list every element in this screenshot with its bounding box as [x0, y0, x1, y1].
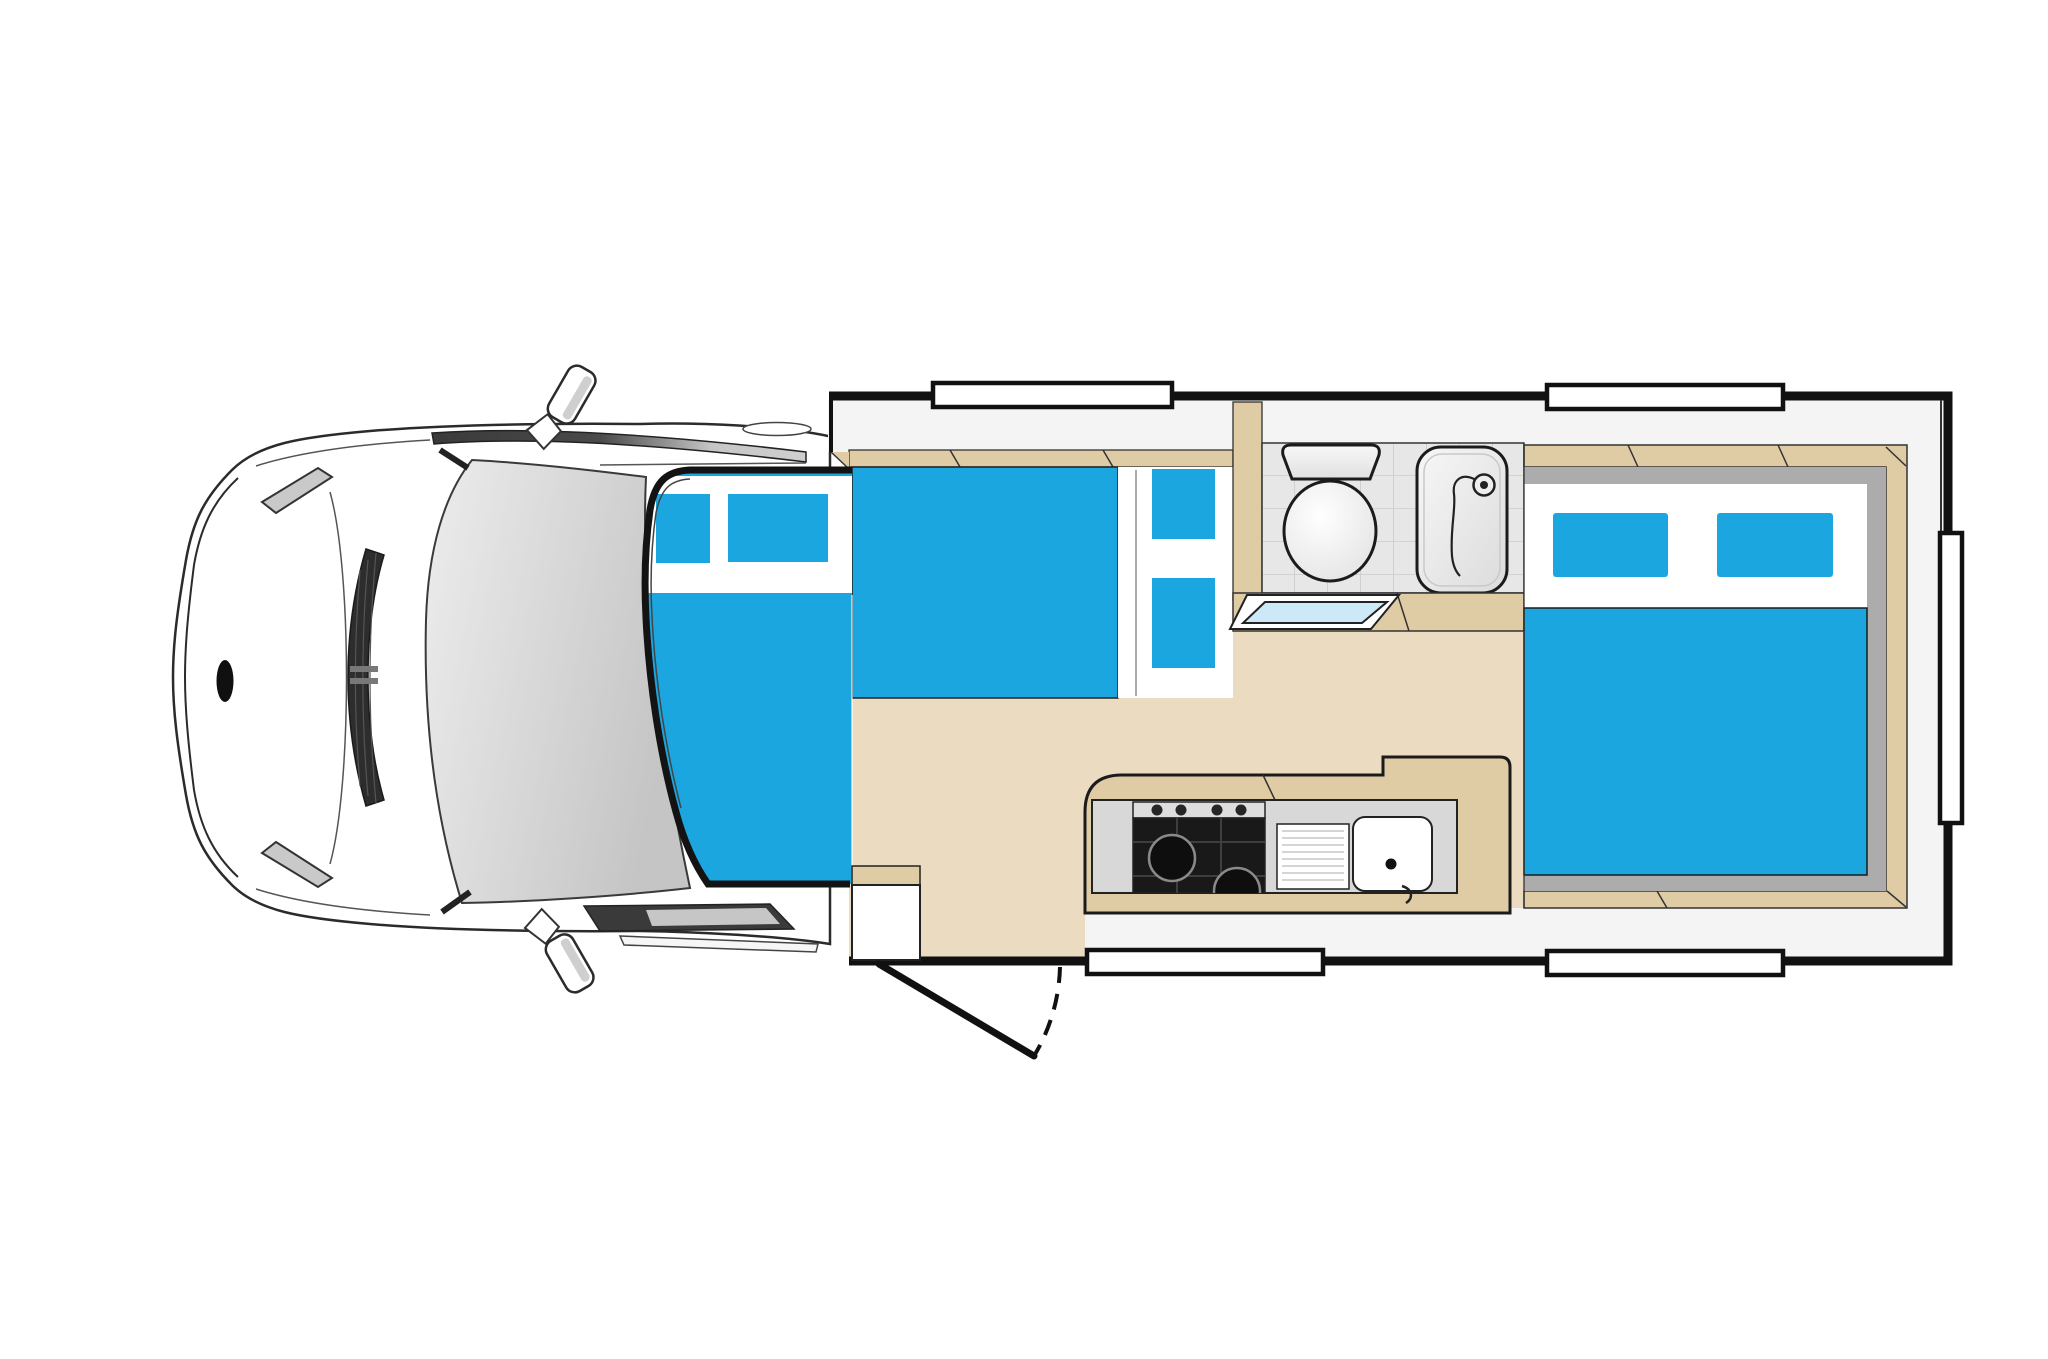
window-bottom-1: [1087, 950, 1323, 974]
vanity-basin: [1243, 602, 1387, 623]
dinette-bench-seat: [852, 467, 1118, 698]
sink-drain: [1386, 859, 1397, 870]
window-top-1: [933, 383, 1172, 407]
toilet-cistern: [1283, 445, 1380, 479]
overcab-window-1: [656, 494, 710, 563]
grille-badge-bar: [350, 678, 378, 684]
window-bottom-2: [1547, 951, 1783, 975]
toilet-bowl: [1284, 481, 1376, 581]
window-top-2: [1547, 385, 1783, 409]
dinette-cushion-2: [1152, 578, 1215, 668]
overcab-window-2: [728, 494, 828, 562]
pillow-1: [1553, 513, 1668, 577]
grille-badge-bar: [350, 666, 378, 672]
mirror-glass: [544, 362, 599, 427]
pillow-2: [1717, 513, 1833, 577]
dinette-cushion-1: [1152, 469, 1215, 539]
roof-vent-oval: [743, 423, 811, 436]
shower-head-dot: [1480, 481, 1488, 489]
door-leaf: [879, 964, 1034, 1056]
mirror-glass: [542, 931, 597, 996]
shower-tray: [1417, 447, 1507, 593]
kitchen-sink: [1353, 817, 1432, 891]
entry-step: [852, 885, 920, 960]
kitchen: [1085, 757, 1510, 914]
burner-1: [1149, 835, 1195, 881]
dinette: [852, 467, 1233, 698]
rear-bed: [1524, 445, 1907, 908]
front-badge: [217, 660, 234, 702]
side-window-glint: [646, 908, 780, 926]
floorplan-page: [0, 0, 2048, 1359]
overcab-window-panel: [640, 476, 852, 593]
window-right: [1940, 533, 1962, 823]
floorplan-canvas: [0, 0, 2048, 1359]
bathroom-partition: [1233, 402, 1262, 600]
bench-band: [849, 450, 1233, 467]
bed-mattress: [1524, 608, 1867, 875]
door-swing-arc: [1034, 967, 1060, 1056]
overhead-bench-band: [831, 450, 1233, 469]
entry-step-top: [852, 866, 920, 885]
